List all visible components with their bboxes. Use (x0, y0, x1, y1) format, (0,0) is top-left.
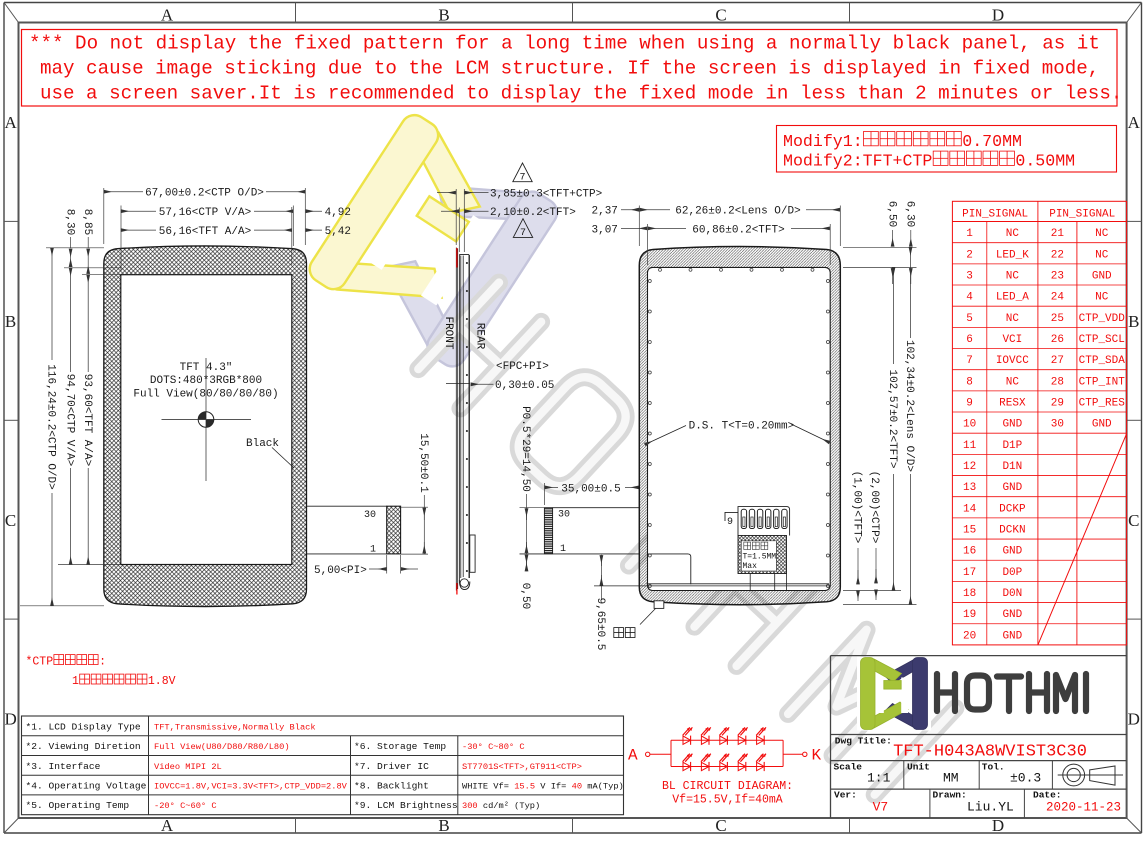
svg-text:0.50MM: 0.50MM (1015, 151, 1075, 170)
svg-text:±0.3: ±0.3 (1010, 771, 1041, 786)
svg-text:30: 30 (364, 510, 376, 521)
svg-text:25: 25 (1051, 313, 1064, 325)
svg-text:D: D (992, 816, 1004, 835)
svg-text::: : (99, 656, 106, 669)
svg-text:0,30±0.05: 0,30±0.05 (495, 380, 554, 392)
svg-text:26: 26 (1051, 334, 1064, 346)
svg-text:Ver:: Ver: (834, 790, 857, 801)
svg-text:GND: GND (1092, 419, 1112, 431)
svg-text:D1P: D1P (1002, 440, 1022, 452)
svg-text:*8. Backlight: *8. Backlight (354, 781, 429, 792)
svg-text:8: 8 (966, 376, 973, 388)
svg-text:22: 22 (1051, 249, 1064, 261)
svg-text:Scale: Scale (834, 762, 863, 773)
svg-text:GND: GND (1092, 270, 1112, 282)
svg-text:8,85: 8,85 (81, 209, 93, 235)
svg-text:8,30: 8,30 (63, 209, 75, 235)
svg-text:use a screen saver.It is recom: use a screen saver.It is recommended to … (40, 83, 1122, 105)
svg-text:94,70<CTP V/A>: 94,70<CTP V/A> (63, 374, 75, 466)
svg-text:1: 1 (72, 675, 79, 688)
svg-text:1.8V: 1.8V (148, 675, 176, 688)
svg-text:GND: GND (1002, 419, 1022, 431)
svg-text:102,34±0.2<Lens O/D>: 102,34±0.2<Lens O/D> (903, 340, 915, 472)
svg-text:NC: NC (1006, 376, 1020, 388)
svg-text:P0.5*29=14,50: P0.5*29=14,50 (519, 406, 531, 492)
svg-text:4,92: 4,92 (325, 207, 351, 219)
svg-text:11: 11 (963, 440, 977, 452)
svg-text:DCKP: DCKP (999, 503, 1026, 515)
svg-text:*2. Viewing Diretion: *2. Viewing Diretion (26, 741, 141, 752)
svg-text:V7: V7 (873, 800, 889, 815)
svg-text:CTP_INT: CTP_INT (1079, 376, 1126, 388)
svg-text:FRONT: FRONT (442, 316, 454, 349)
svg-text:28: 28 (1051, 376, 1064, 388)
svg-text:D0N: D0N (1002, 588, 1022, 600)
svg-text:LED_A: LED_A (996, 292, 1029, 304)
svg-text:7: 7 (519, 173, 525, 184)
svg-text:Liu.YL: Liu.YL (967, 800, 1014, 815)
svg-text:TFT,Transmissive,Normally Blac: TFT,Transmissive,Normally Black (154, 722, 316, 732)
svg-text:B: B (438, 6, 449, 25)
svg-text:VCI: VCI (1002, 334, 1022, 346)
svg-text:Full View(U80/D80/R80/L80): Full View(U80/D80/R80/L80) (154, 742, 290, 752)
svg-text:C: C (715, 816, 726, 835)
svg-text:5,42: 5,42 (325, 226, 351, 238)
svg-text:D.S. T<T=0.20mm>: D.S. T<T=0.20mm> (689, 421, 795, 433)
svg-text:REAR: REAR (474, 323, 486, 350)
svg-text:MM: MM (943, 771, 959, 786)
svg-text:1: 1 (560, 544, 566, 555)
svg-text:6: 6 (966, 334, 973, 346)
svg-text:NC: NC (1006, 270, 1020, 282)
svg-text:20: 20 (963, 630, 976, 642)
svg-text:21: 21 (1051, 228, 1065, 240)
svg-text:17: 17 (963, 567, 976, 579)
svg-text:A: A (161, 6, 174, 25)
svg-text:D: D (1128, 710, 1140, 729)
svg-text:*7. Driver IC: *7. Driver IC (354, 761, 429, 772)
svg-text:2: 2 (966, 249, 973, 261)
svg-text:12: 12 (963, 461, 976, 473)
svg-text:*1. LCD Display Type: *1. LCD Display Type (26, 721, 141, 732)
svg-text:18: 18 (963, 588, 976, 600)
svg-text:Full View(80/80/80/80): Full View(80/80/80/80) (133, 389, 278, 401)
svg-text:Max: Max (743, 562, 758, 571)
svg-text:3,07: 3,07 (592, 224, 618, 236)
svg-text:A: A (4, 113, 17, 132)
svg-text:5: 5 (966, 313, 973, 325)
svg-text:Modify2:TFT+CTP: Modify2:TFT+CTP (783, 151, 932, 170)
svg-text:67,00±0.2<CTP O/D>: 67,00±0.2<CTP O/D> (145, 188, 264, 200)
svg-text:(2,00)<CTP>: (2,00)<CTP> (868, 471, 880, 544)
svg-text:B: B (5, 312, 16, 331)
svg-text:IOVCC=1.8V,VCI=3.3V<TFT>,CTP_V: IOVCC=1.8V,VCI=3.3V<TFT>,CTP_VDD=2.8V (154, 782, 348, 792)
svg-text:1:1: 1:1 (867, 771, 891, 786)
svg-text:30: 30 (1051, 419, 1064, 431)
svg-text:(1,00)<TFT>: (1,00)<TFT> (851, 471, 863, 544)
svg-text:Video MIPI 2L: Video MIPI 2L (154, 762, 222, 772)
svg-text:6,30: 6,30 (904, 201, 916, 227)
svg-text:23: 23 (1051, 270, 1064, 282)
svg-text:116,24±0.2<CTP O/D>: 116,24±0.2<CTP O/D> (45, 364, 57, 489)
svg-text:*** Do not display the fixed p: *** Do not display the fixed pattern for… (29, 33, 1100, 55)
svg-text:TFT-H043A8WVIST3C30: TFT-H043A8WVIST3C30 (893, 743, 1087, 762)
svg-text:2,10±0.2<TFT>: 2,10±0.2<TFT> (490, 207, 576, 219)
svg-text:*CTP: *CTP (26, 656, 54, 669)
svg-text:Drawn:: Drawn: (933, 790, 967, 801)
svg-text:IOVCC: IOVCC (996, 355, 1029, 367)
svg-text:GND: GND (1002, 482, 1022, 494)
svg-text:PIN_SIGNAL: PIN_SIGNAL (1049, 208, 1115, 220)
svg-text:GND: GND (1002, 630, 1022, 642)
svg-text:30: 30 (558, 510, 570, 521)
svg-text:3,85±0.3<TFT+CTP>: 3,85±0.3<TFT+CTP> (490, 189, 602, 201)
svg-text:may cause image sticking due t: may cause image sticking due to the LCM … (40, 58, 1099, 80)
svg-text:*3. Interface: *3. Interface (26, 761, 101, 772)
svg-text:Unit: Unit (907, 762, 930, 773)
svg-text:9,65±0.5: 9,65±0.5 (594, 598, 606, 651)
svg-text:0.70MM: 0.70MM (962, 132, 1022, 151)
svg-text:6,50: 6,50 (885, 201, 897, 227)
svg-text:62,26±0.2<Lens O/D>: 62,26±0.2<Lens O/D> (675, 206, 800, 218)
svg-text:Date:: Date: (1033, 790, 1062, 801)
svg-text:GND: GND (1002, 609, 1022, 621)
svg-text:35,00±0.5: 35,00±0.5 (561, 483, 620, 495)
svg-text:K: K (812, 747, 822, 765)
svg-text:5,00<PI>: 5,00<PI> (314, 565, 367, 577)
svg-text:mA(Typ): mA(Typ) (587, 782, 624, 792)
svg-text:-20° C~60° C: -20° C~60° C (154, 801, 217, 811)
svg-text:9: 9 (966, 397, 973, 409)
svg-text:CTP_SCL: CTP_SCL (1079, 334, 1125, 346)
svg-text:Dwg Title:: Dwg Title: (835, 736, 892, 747)
svg-text:9: 9 (727, 517, 733, 528)
svg-text:19: 19 (963, 609, 976, 621)
svg-text:15,50±0.1: 15,50±0.1 (417, 433, 429, 493)
svg-text:<FPC+PI>: <FPC+PI> (496, 361, 549, 373)
svg-text:27: 27 (1051, 355, 1064, 367)
svg-text:NC: NC (1095, 228, 1109, 240)
svg-text:C: C (1128, 511, 1139, 530)
svg-text:LED_K: LED_K (996, 249, 1029, 261)
svg-text:TFT 4.3": TFT 4.3" (180, 362, 233, 374)
svg-text:D0P: D0P (1002, 567, 1022, 579)
svg-text:13: 13 (963, 482, 976, 494)
svg-text:93,60<TFT A/A>: 93,60<TFT A/A> (81, 374, 93, 466)
svg-text:D: D (4, 710, 16, 729)
svg-text:A: A (1128, 113, 1141, 132)
svg-text:BL CIRCUIT DIAGRAM:: BL CIRCUIT DIAGRAM: (662, 780, 793, 793)
svg-text:B: B (1128, 312, 1139, 331)
svg-text:*6. Storage Temp: *6. Storage Temp (354, 741, 446, 752)
svg-text:Vf=15.5V,If=40mA: Vf=15.5V,If=40mA (672, 794, 783, 807)
svg-text:B: B (438, 816, 449, 835)
svg-text:Modify1:: Modify1: (783, 132, 863, 151)
svg-text:29: 29 (1051, 397, 1064, 409)
svg-text:40: 40 (572, 782, 582, 792)
svg-text:WHITE Vf=: WHITE Vf= (462, 782, 509, 792)
svg-text:14: 14 (963, 503, 977, 515)
svg-text:24: 24 (1051, 292, 1065, 304)
svg-text:T=1.5MM: T=1.5MM (743, 553, 777, 562)
svg-text:GND: GND (1002, 546, 1022, 558)
svg-text:3: 3 (966, 270, 973, 282)
svg-text:10: 10 (963, 419, 976, 431)
svg-text:DOTS:480*3RGB*800: DOTS:480*3RGB*800 (150, 375, 262, 387)
svg-text:*9. LCM Brightness: *9. LCM Brightness (354, 800, 458, 811)
svg-text:NC: NC (1095, 292, 1109, 304)
svg-text:CTP_SDA: CTP_SDA (1079, 355, 1126, 367)
svg-text:1: 1 (966, 228, 973, 240)
svg-text:0,50: 0,50 (519, 583, 531, 609)
svg-text:DCKN: DCKN (999, 524, 1025, 536)
svg-text:V If=: V If= (540, 782, 566, 792)
svg-text:15: 15 (963, 524, 976, 536)
svg-text:ST7701S<TFT>,GT911<CTP>: ST7701S<TFT>,GT911<CTP> (462, 762, 582, 772)
svg-text:60,86±0.2<TFT>: 60,86±0.2<TFT> (692, 224, 784, 236)
svg-text:7: 7 (520, 228, 526, 239)
svg-text:Tol.: Tol. (982, 762, 1005, 773)
svg-text:*4. Operating Voltage: *4. Operating Voltage (26, 781, 147, 792)
svg-text:4: 4 (966, 292, 973, 304)
svg-text:NC: NC (1006, 313, 1020, 325)
svg-text:D: D (992, 6, 1004, 25)
svg-text:CTP_VDD: CTP_VDD (1079, 313, 1126, 325)
svg-text:7: 7 (966, 355, 973, 367)
svg-text:C: C (5, 511, 16, 530)
svg-text:PIN_SIGNAL: PIN_SIGNAL (962, 208, 1028, 220)
svg-text:CTP_RES: CTP_RES (1079, 397, 1126, 409)
svg-text:*5. Operating Temp: *5. Operating Temp (26, 800, 130, 811)
svg-text:cd/m² (Typ): cd/m² (Typ) (483, 801, 540, 811)
svg-text:C: C (715, 6, 726, 25)
svg-text:57,16<CTP V/A>: 57,16<CTP V/A> (159, 207, 251, 219)
svg-text:102,57±0.2<TFT>: 102,57±0.2<TFT> (886, 369, 898, 468)
svg-text:300: 300 (462, 801, 478, 811)
svg-text:RESX: RESX (999, 397, 1026, 409)
svg-text:16: 16 (963, 546, 976, 558)
svg-text:56,16<TFT A/A>: 56,16<TFT A/A> (159, 226, 251, 238)
svg-text:15.5: 15.5 (514, 782, 535, 792)
svg-text:D1N: D1N (1002, 461, 1022, 473)
svg-text:2020-11-23: 2020-11-23 (1046, 801, 1121, 815)
svg-text:A: A (628, 747, 638, 765)
svg-text:Black: Black (246, 438, 279, 450)
svg-text:NC: NC (1095, 249, 1109, 261)
svg-text:2,37: 2,37 (592, 206, 618, 218)
svg-text:-30° C~80° C: -30° C~80° C (462, 742, 525, 752)
svg-text:A: A (161, 816, 174, 835)
svg-text:NC: NC (1006, 228, 1020, 240)
